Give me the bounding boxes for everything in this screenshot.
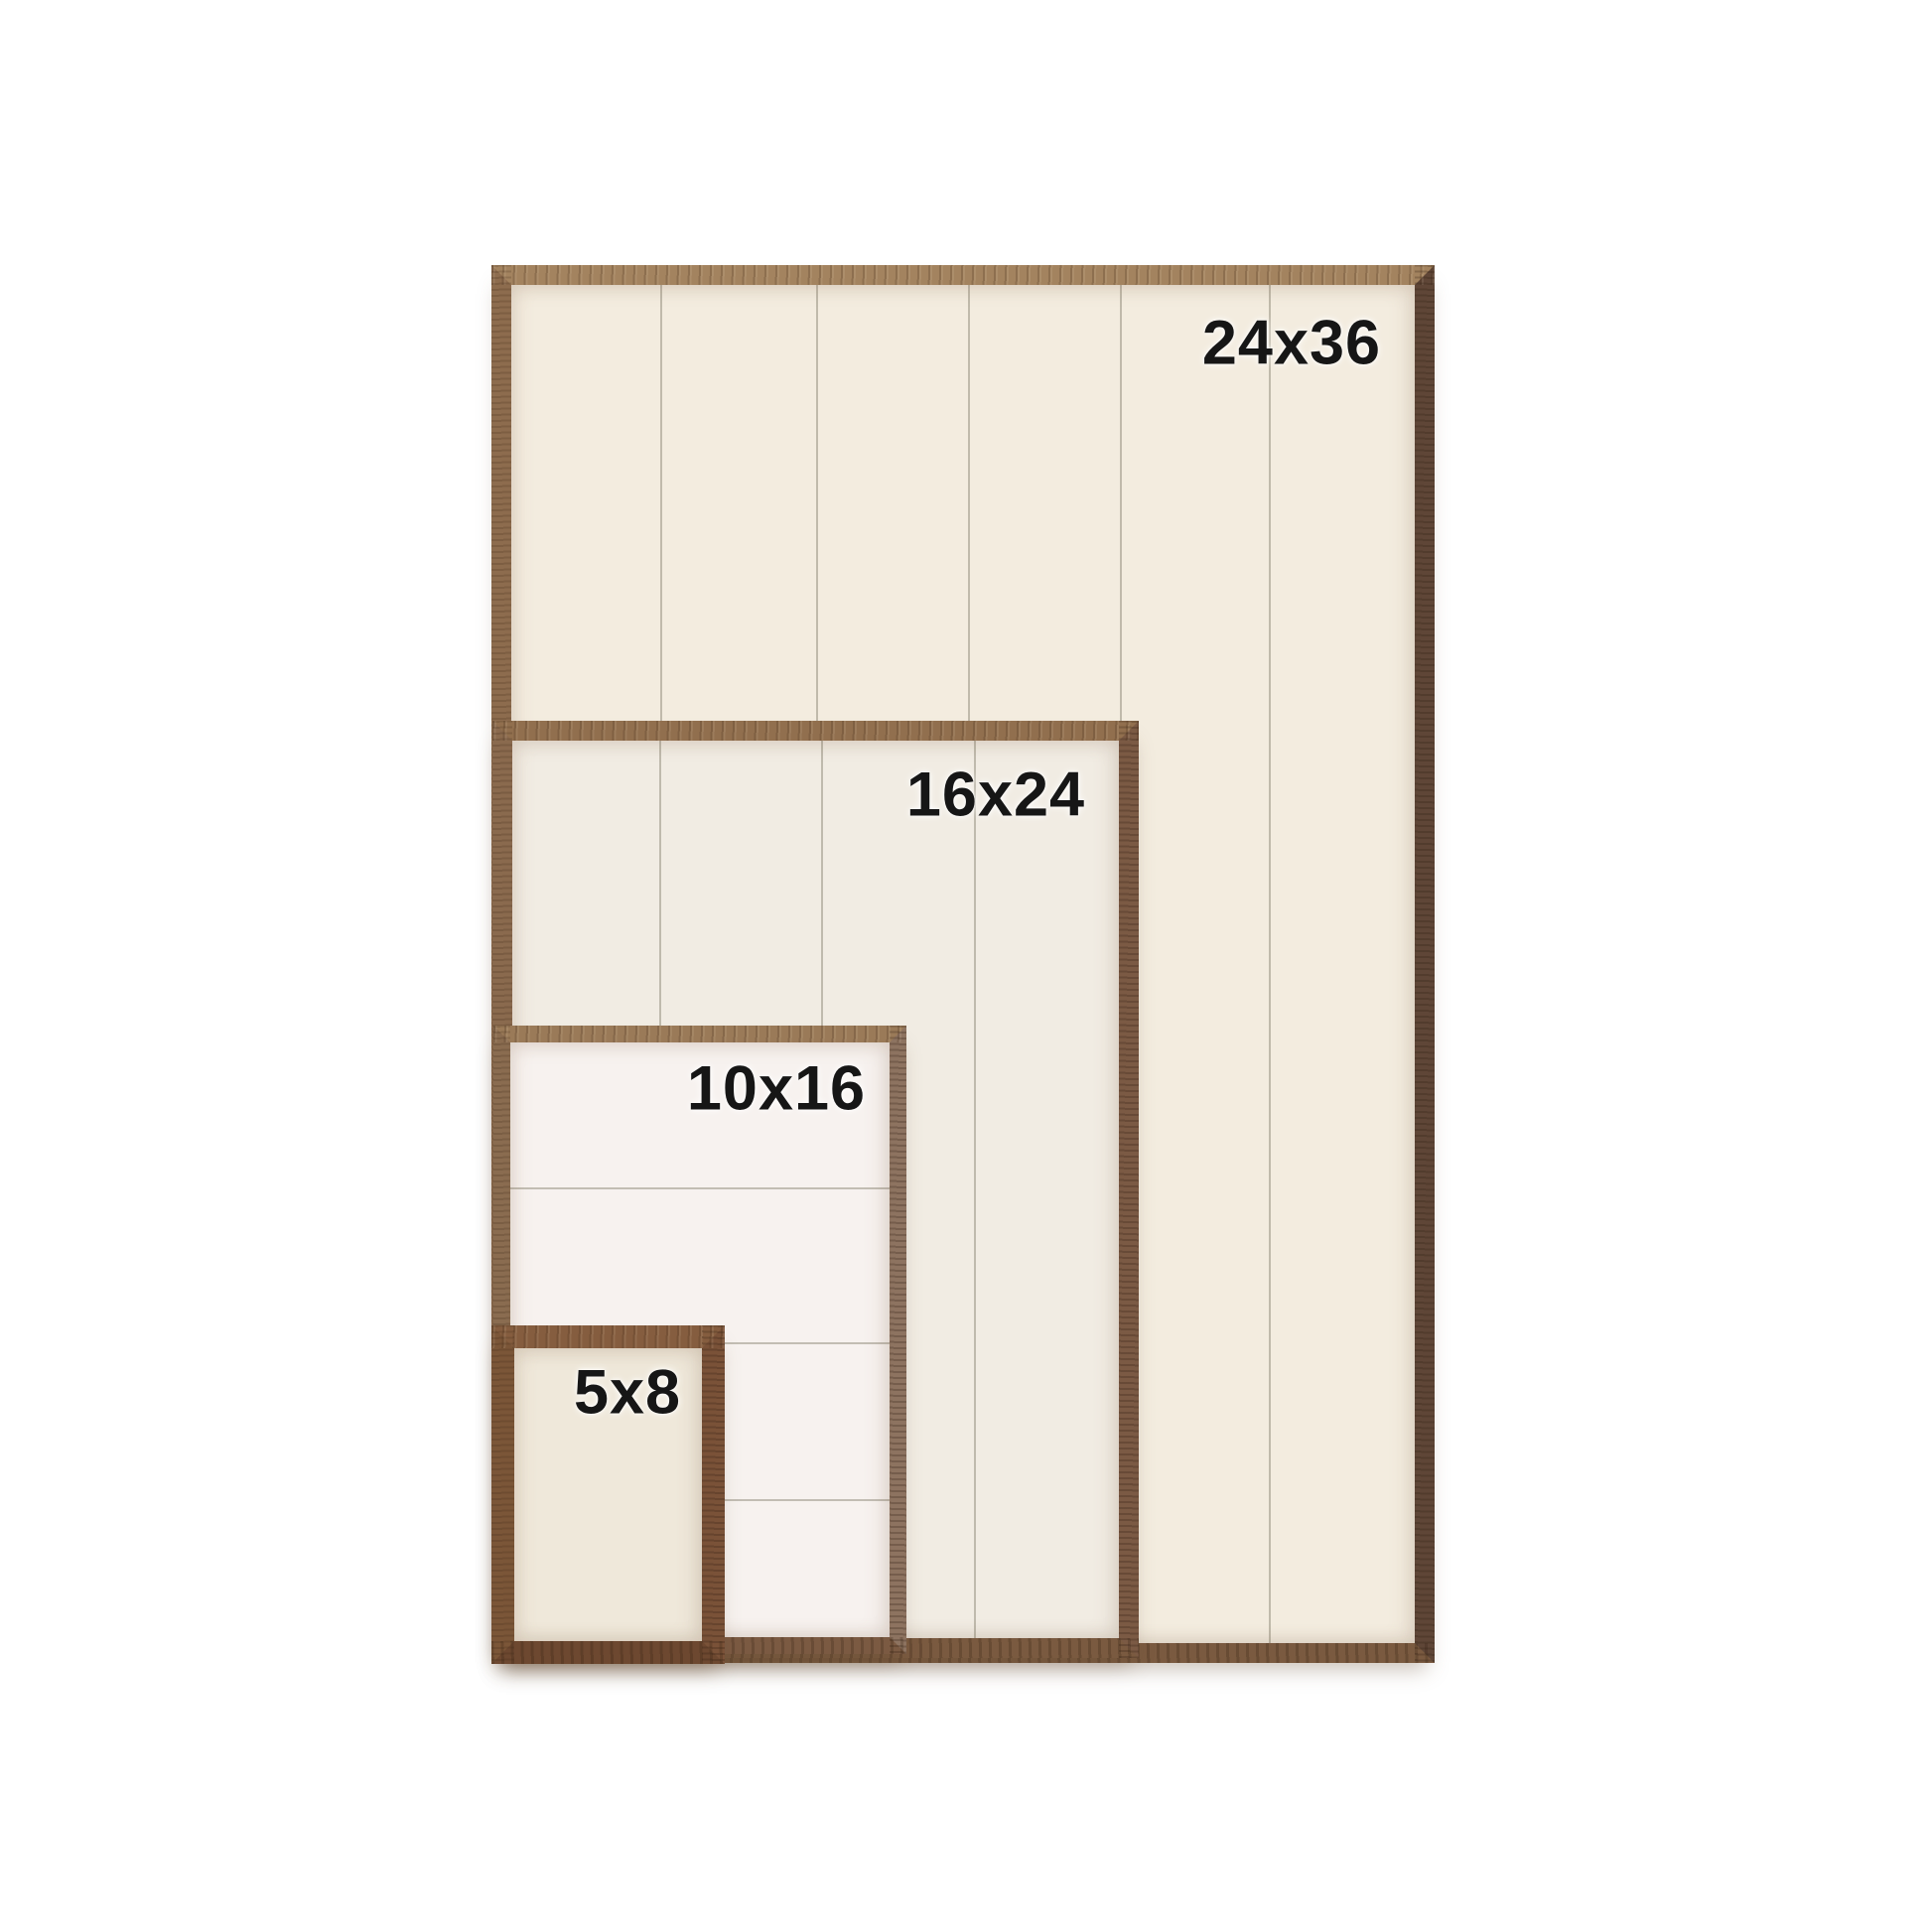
frame-size-comparison: 24x36 16x24 10x16 5x8: [0, 0, 1932, 1932]
plank-seam: [510, 1187, 890, 1189]
wood-rail-top: [493, 1026, 906, 1042]
wood-rail-right: [702, 1325, 725, 1664]
wood-rail-right: [890, 1026, 906, 1654]
wood-rail-right: [1415, 265, 1435, 1663]
wood-rail-right: [1119, 721, 1139, 1658]
wood-rail-top: [491, 1325, 725, 1348]
size-label-5x8: 5x8: [574, 1362, 681, 1425]
size-label-10x16: 10x16: [687, 1058, 866, 1121]
plank-seam: [1269, 285, 1271, 1643]
size-label-24x36: 24x36: [1202, 313, 1381, 375]
wood-rail-top: [491, 265, 1435, 285]
plank-seam: [974, 741, 976, 1638]
wood-rail-bottom: [491, 1641, 725, 1664]
wood-rail-top: [492, 721, 1139, 741]
wood-rail-left: [491, 1325, 514, 1664]
size-label-16x24: 16x24: [906, 764, 1085, 827]
